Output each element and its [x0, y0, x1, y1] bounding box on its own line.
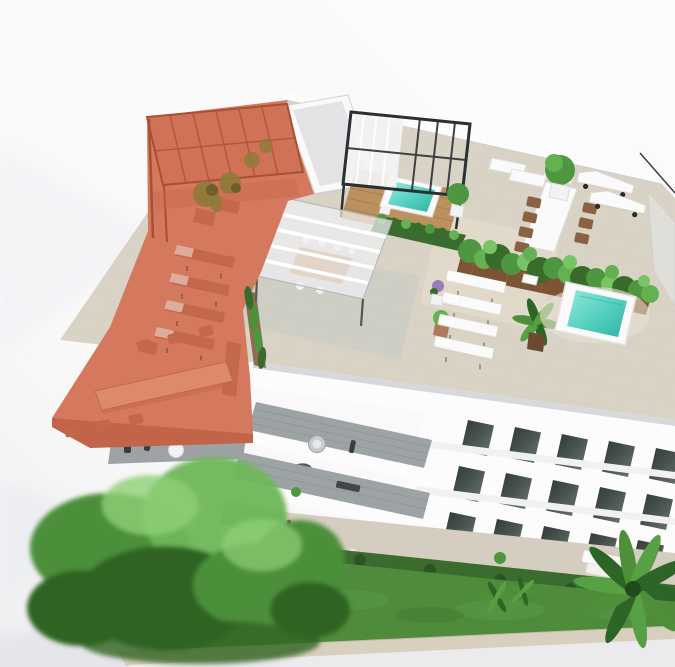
palm-pot [527, 332, 545, 352]
render-canvas [0, 0, 675, 667]
patio-plant [494, 552, 506, 564]
white-pot [450, 204, 464, 218]
palm-crown [625, 581, 641, 597]
balcony-plant [291, 487, 301, 497]
potted-shrub [447, 183, 469, 205]
aerial-building-render [0, 0, 675, 667]
potted-shrub [545, 154, 563, 172]
hanging-chair-cushion [313, 440, 322, 449]
